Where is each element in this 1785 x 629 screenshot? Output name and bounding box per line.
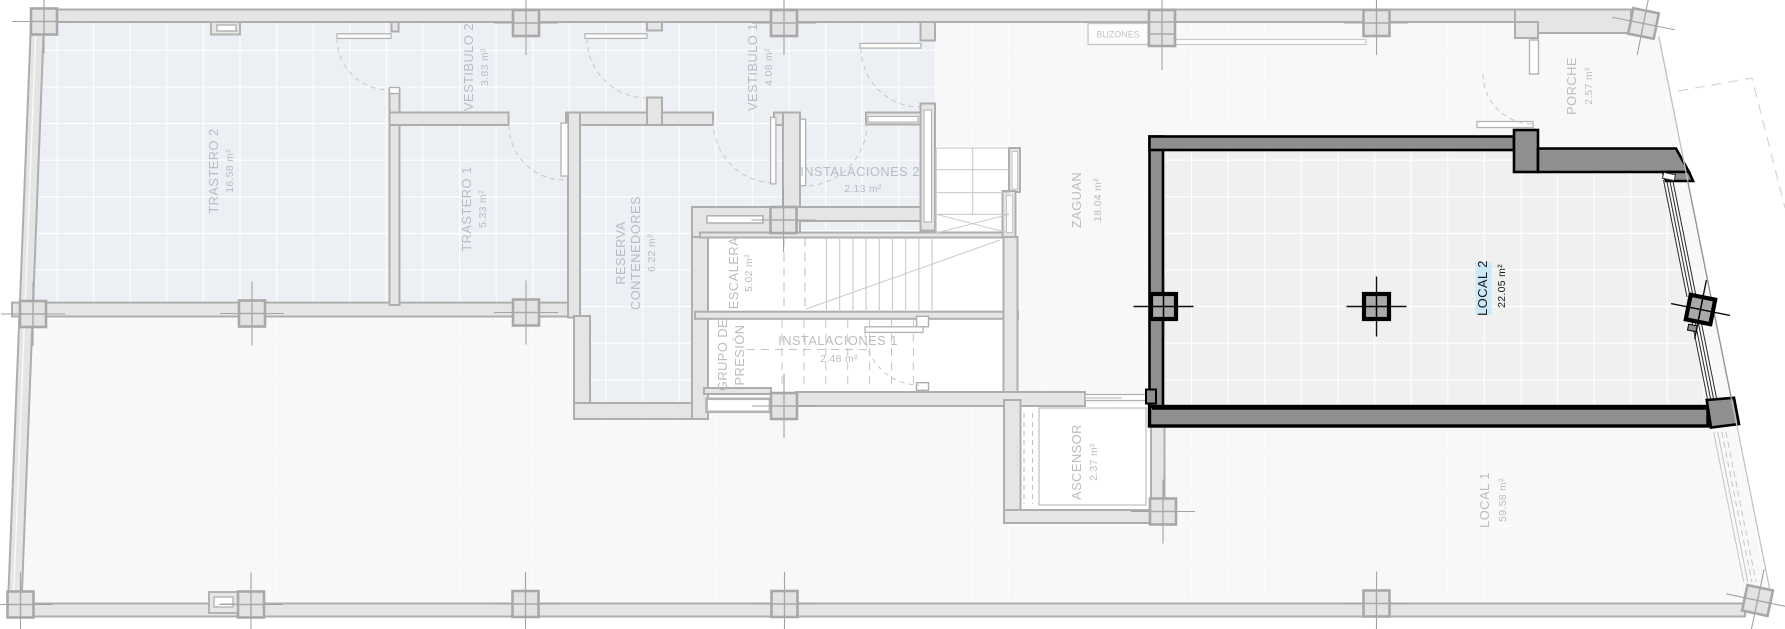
svg-text:PRESIÓN: PRESIÓN bbox=[732, 324, 747, 385]
svg-text:5.33 m²: 5.33 m² bbox=[477, 190, 489, 228]
svg-text:LOCAL 2: LOCAL 2 bbox=[1475, 260, 1490, 316]
svg-text:59.58 m²: 59.58 m² bbox=[1497, 478, 1509, 522]
svg-text:BUZONES: BUZONES bbox=[1096, 30, 1140, 40]
svg-text:2.48 m²: 2.48 m² bbox=[820, 353, 858, 365]
svg-text:TRASTERO 2: TRASTERO 2 bbox=[206, 128, 221, 213]
svg-text:PORCHE: PORCHE bbox=[1564, 57, 1579, 115]
svg-text:2.13 m²: 2.13 m² bbox=[844, 183, 882, 195]
svg-text:INSTALACIONES 2: INSTALACIONES 2 bbox=[800, 164, 920, 179]
svg-text:INSTALACIONES 1: INSTALACIONES 1 bbox=[778, 333, 898, 348]
svg-text:CONTENEDORES: CONTENEDORES bbox=[628, 196, 643, 310]
svg-text:5.02 m²: 5.02 m² bbox=[743, 254, 755, 292]
svg-text:2.37 m²: 2.37 m² bbox=[1088, 443, 1100, 481]
svg-text:LOCAL 1: LOCAL 1 bbox=[1477, 472, 1492, 528]
svg-text:18.04 m²: 18.04 m² bbox=[1092, 178, 1104, 222]
svg-text:RESERVA: RESERVA bbox=[613, 221, 628, 284]
svg-text:GRUPO DE: GRUPO DE bbox=[715, 319, 730, 391]
svg-text:VESTIBULO 1: VESTIBULO 1 bbox=[745, 23, 760, 111]
svg-text:3.83 m²: 3.83 m² bbox=[479, 48, 491, 86]
svg-text:6.22 m²: 6.22 m² bbox=[646, 234, 658, 272]
svg-text:4.08 m²: 4.08 m² bbox=[763, 48, 775, 86]
svg-text:2.57 m²: 2.57 m² bbox=[1583, 67, 1595, 105]
svg-text:ASCENSOR: ASCENSOR bbox=[1069, 424, 1084, 500]
svg-text:22.05 m²: 22.05 m² bbox=[1496, 264, 1508, 308]
svg-text:TRASTERO 1: TRASTERO 1 bbox=[459, 166, 474, 251]
svg-text:ZAGUAN: ZAGUAN bbox=[1069, 172, 1084, 228]
svg-text:VESTIBULO 2: VESTIBULO 2 bbox=[461, 23, 476, 111]
svg-text:ESCALERA: ESCALERA bbox=[726, 237, 741, 309]
svg-text:16.58 m²: 16.58 m² bbox=[224, 149, 236, 193]
